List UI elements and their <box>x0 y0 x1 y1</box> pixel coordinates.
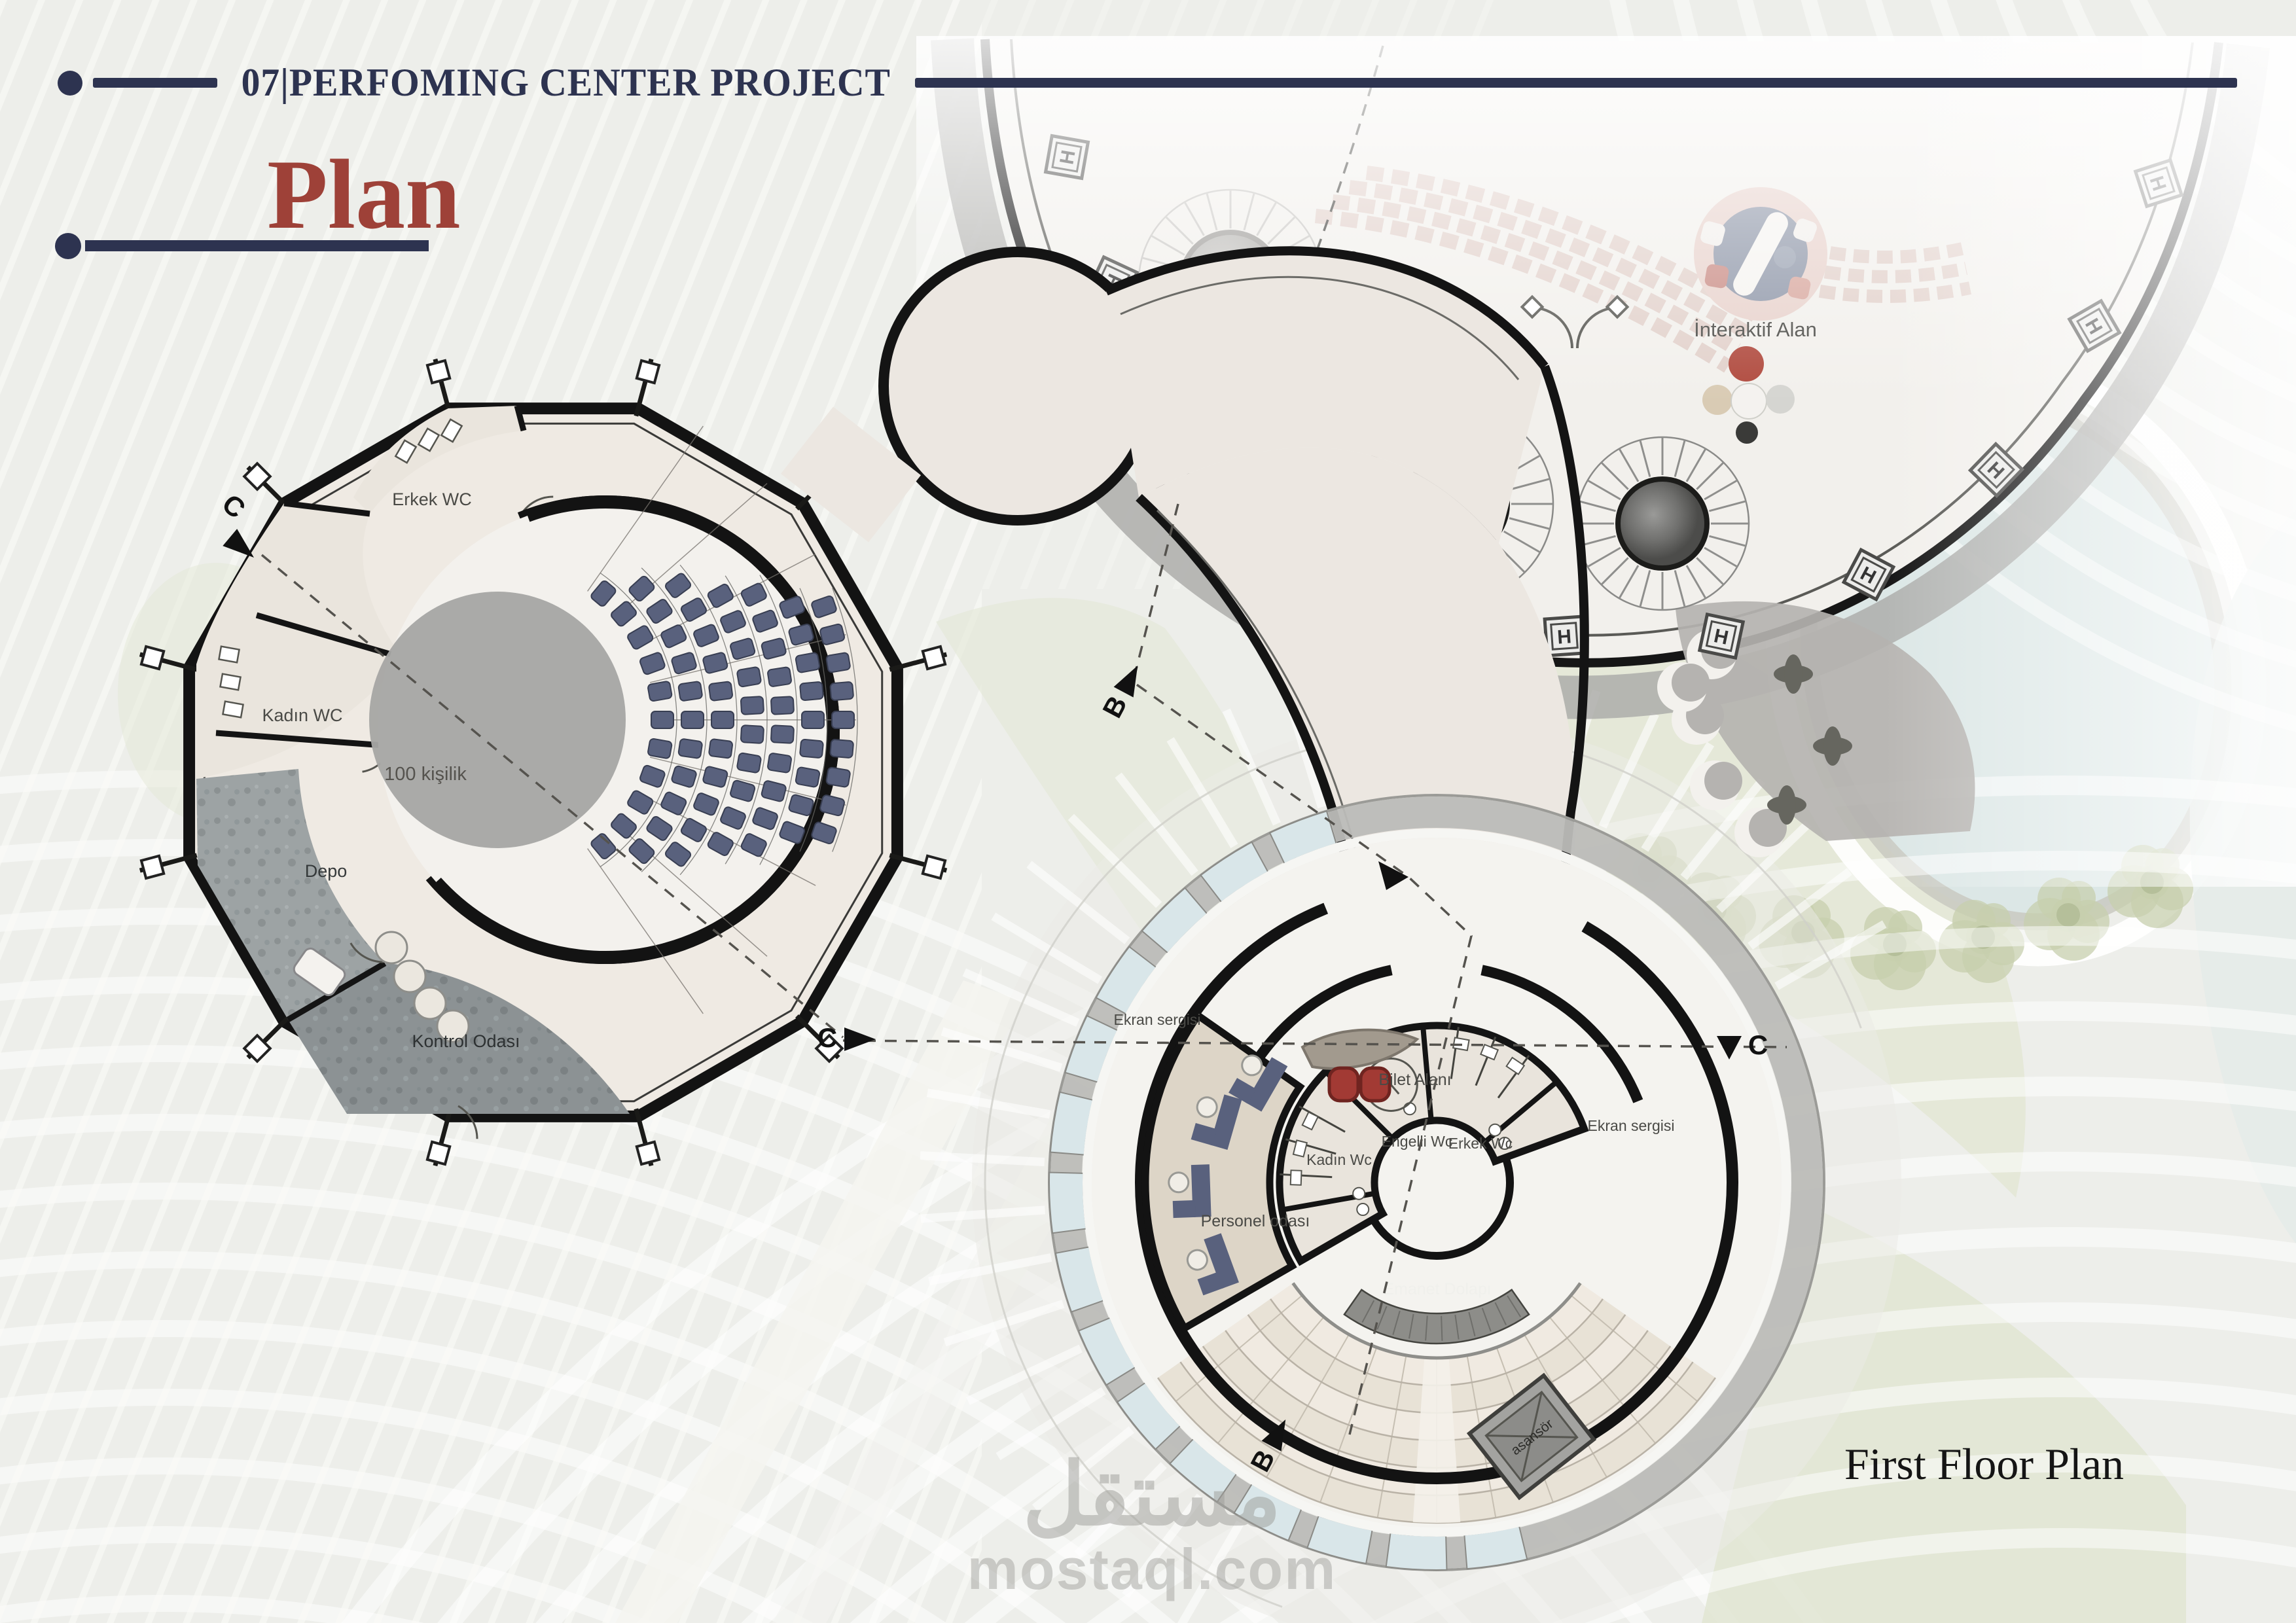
header-rule-right <box>915 78 2237 88</box>
upper-fade-right <box>1885 36 2296 887</box>
label-bilet-alani: Bilet Alanı <box>1378 1071 1451 1089</box>
seat <box>647 738 672 759</box>
decor-circle <box>1618 479 1707 568</box>
label-capacity: 100 kişilik <box>384 764 467 785</box>
label-kadin-wc: Kadın WC <box>262 705 342 725</box>
stool <box>394 961 425 992</box>
seat <box>802 711 824 728</box>
decor-rect <box>923 856 945 878</box>
title-underline <box>85 240 429 251</box>
decor-rect <box>923 647 945 669</box>
seat <box>647 681 672 702</box>
decor-ellipse <box>1784 654 1803 694</box>
decor-rect <box>1173 1200 1196 1218</box>
label-ekran-sergisi-left: Ekran sergisi <box>1114 1011 1201 1028</box>
decor-rect <box>219 647 239 663</box>
decor-circle <box>1672 664 1710 702</box>
label-depo: Depo <box>305 861 348 881</box>
decor-ellipse <box>1823 726 1842 766</box>
decor-rect <box>141 647 164 669</box>
seat <box>741 696 764 715</box>
seat <box>767 667 792 687</box>
decor-rect <box>141 856 164 878</box>
label-emanet-dolabi: Emanet Dolapı <box>1383 1280 1491 1298</box>
decor-ellipse <box>1778 785 1796 825</box>
decor-rect <box>220 674 240 690</box>
wc-toilet <box>1404 1103 1416 1115</box>
header-title: 07|PERFOMING CENTER PROJECT <box>242 60 891 105</box>
label-ekran-sergisi-right: Ekran sergisi <box>1588 1117 1675 1134</box>
seat <box>771 696 794 715</box>
seat <box>795 652 820 673</box>
seat <box>795 767 820 788</box>
label-erkek-wc-lower: Erkek Wc <box>1448 1135 1513 1152</box>
stool <box>414 988 446 1019</box>
section-letter-c: C <box>1748 1029 1768 1060</box>
glazing-panel <box>1049 1173 1086 1234</box>
section-letter-c: C <box>817 1022 837 1053</box>
wc-toilet <box>1489 1124 1501 1136</box>
seat <box>800 682 823 701</box>
h-column-letter: H <box>1556 626 1572 648</box>
wc-sink <box>1291 1170 1302 1185</box>
decor-circle <box>1704 762 1742 800</box>
spiral-stair-core-b <box>1576 437 1749 610</box>
decor-rect <box>223 702 243 718</box>
h-column-marker: H <box>1700 615 1743 658</box>
seat <box>678 681 702 702</box>
label-erkek-wc: Erkek WC <box>392 490 472 509</box>
decor-rect <box>637 361 659 383</box>
label-engelli-wc: Engelli Wc <box>1382 1133 1453 1150</box>
decor-circle <box>1168 1172 1189 1192</box>
wc-toilet <box>1357 1204 1369 1215</box>
seat <box>771 725 794 743</box>
label-kontrol-odasi: Kontrol Odası <box>412 1031 520 1051</box>
wc-toilet <box>1353 1188 1365 1200</box>
page-title: Plan <box>267 137 461 251</box>
label-personel-odasi: Personel odası <box>1201 1212 1310 1230</box>
seat <box>826 767 851 787</box>
seat <box>741 725 764 743</box>
seat <box>681 711 704 728</box>
presentation-board: pano Fuaye İnteraktif Alan HHHHHHHHHHH <box>0 0 2296 1623</box>
seat <box>711 711 734 728</box>
decor-rect <box>637 1142 659 1164</box>
seat <box>736 667 761 687</box>
seat <box>736 753 761 773</box>
glazing-panel <box>1386 1533 1447 1570</box>
drawing-caption: First Floor Plan <box>1844 1438 2124 1490</box>
header-rule-left <box>93 78 217 88</box>
lower-building: asansör Bilet Alanı Kadın Wc Engelli Wc … <box>1049 795 1824 1570</box>
seat <box>709 681 733 701</box>
decor-rect <box>427 361 450 383</box>
header-dot-icon <box>58 71 82 96</box>
seat <box>678 738 702 758</box>
seat <box>800 739 823 758</box>
decor-rect <box>427 1142 450 1164</box>
seat <box>826 652 851 673</box>
seat <box>830 740 853 758</box>
decor-line <box>1441 1316 1442 1341</box>
title-underline-dot-icon <box>55 233 81 259</box>
decor-circle <box>2056 903 2080 927</box>
stool <box>376 932 407 963</box>
seat <box>709 739 733 758</box>
seat <box>830 682 853 701</box>
h-column-marker: H <box>1545 616 1584 656</box>
seat <box>767 753 792 773</box>
seat <box>651 711 673 728</box>
label-kadin-wc-lower: Kadın Wc <box>1306 1151 1372 1168</box>
page-header: 07|PERFOMING CENTER PROJECT <box>58 60 2237 105</box>
seat <box>832 711 854 728</box>
stage <box>369 592 626 848</box>
